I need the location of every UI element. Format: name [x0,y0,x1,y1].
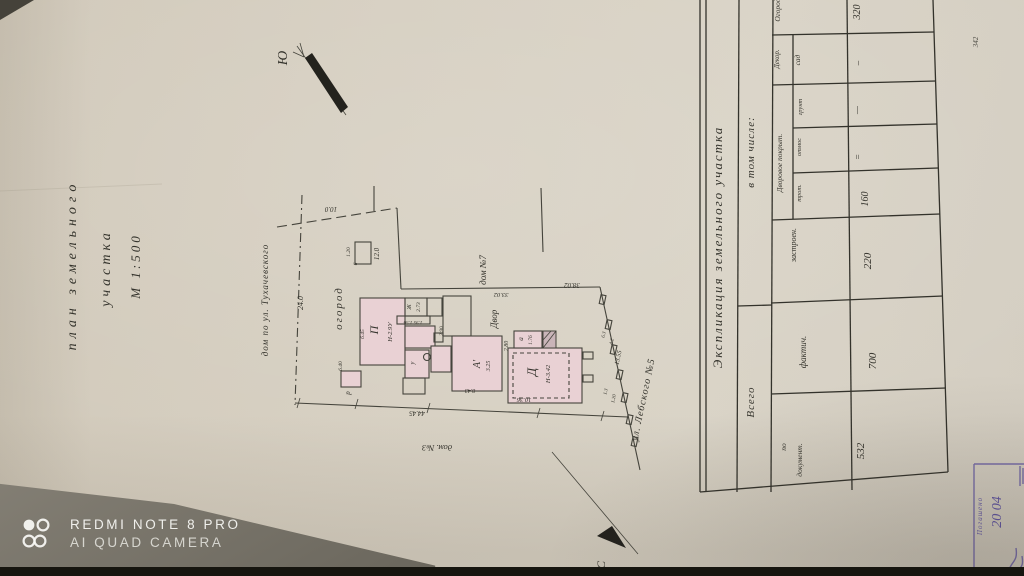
building-r-label: р [344,391,352,396]
dim-640: 6.40 [337,361,344,371]
camera-lens-outline-3 [35,535,46,546]
value-sidewalk: 160 [860,192,871,207]
table-row-b [772,81,936,85]
outbuilding-3 [431,346,451,372]
col-group-included: в том числе: [745,116,757,188]
neighbor-rear-label: дом по ул. Тухачевского [260,244,270,357]
quad-camera-icon [22,518,58,550]
building-P-height: Н-2.9У [387,321,394,343]
sheet-title-line2: участка [99,229,114,308]
photo-bottom-edge [0,567,1024,576]
value-fact: 700 [867,352,879,369]
compass-south: Ю [276,43,348,115]
dim-645: 6.45 [359,329,366,339]
compass-barbs [293,43,304,57]
dim-12: 12.0 [373,247,381,260]
col-decor: Декор. [773,49,781,70]
compass-south-label: Ю [276,50,291,66]
pencil-note: 342 [972,36,980,48]
col-group-total: Всего [745,386,757,417]
dim-42: 4.2 [609,338,615,346]
value-ogorod: 320 [852,5,863,21]
dim-120b: 1.20 [611,394,618,404]
watermark-line1: REDMI NOTE 8 PRO [70,517,241,532]
col-built: застроен. [789,228,798,263]
outbuilding-1 [405,326,435,348]
stamp-text: Погашено [976,497,984,536]
col-sidewalk: трот. [796,184,803,202]
camera-lens-outline-2 [24,535,35,546]
col-by-doc-2: документ. [795,443,804,477]
table-row-e [772,214,940,220]
yard-wing [443,296,471,336]
house7-label: дом №7 [478,255,488,285]
shed-small [355,242,371,264]
porch-1 [583,352,593,359]
outbuilding-u-label: у [409,361,416,365]
outbuilding-4 [403,378,425,394]
building-A-label: А' [472,359,483,369]
building-r [341,371,361,387]
side-jog [397,208,401,289]
dim-176: 1.76 [528,335,534,345]
col-blind-area: отмос [796,138,803,156]
table-row-a [772,32,934,35]
col-ogorod: Огород [773,0,782,22]
value-built: 220 [862,252,874,269]
camera-lens-filled [24,519,35,530]
col-sad: сад [793,54,802,65]
paper-crease [0,184,162,191]
house3-label: дом. №3 [422,443,452,453]
dim-3802: 38.02 [564,281,581,289]
explication-table: Экспликация земельного участка в том чис… [700,0,948,492]
stamp-edge-text-marks [1020,466,1023,486]
porch-2 [583,375,593,382]
dim-195156: 1.95 1.56 [403,319,422,324]
value-blind-area: = [853,154,863,160]
dim-1355: 13.55 [614,349,624,365]
dim-6: 6 [353,262,359,265]
sheet-title-line1: план земельного [65,180,80,351]
dim-3302: 33.02 [493,291,509,298]
north-arrowhead [597,526,626,548]
camera-watermark: REDMI NOTE 8 PRO AI QUAD CAMERA [22,517,241,550]
stamp-date: 20 04 [990,496,1005,528]
table-border-right [933,0,948,472]
dim-290: 2.90 [439,326,445,336]
col-by-doc-1: по [779,443,788,451]
table-split-total [738,305,772,306]
dim-325: 3.25 [486,361,492,373]
dim-4445: 44.45 [409,409,425,417]
table-rule-2 [771,0,773,492]
house3-boundary [295,403,628,417]
building-P-label: П [367,324,381,335]
dim-13: 1.3 [603,388,609,396]
dim-1036: 10.36 [516,396,531,403]
garden-label: огород [333,286,345,330]
neighbor-line-b [541,188,543,252]
photographed-plan-sheet: план земельного участка М 1:500 Ю С [0,0,1024,576]
table-title: Экспликация земельного участка [710,126,725,369]
table-rule-1 [737,0,739,492]
dim-280: 2.80 [504,341,510,352]
dim-843: 8.43 [465,387,476,394]
plan-drawing-svg: план земельного участка М 1:500 Ю С [0,0,1024,576]
table-rule-3 [847,0,852,490]
dim-63: 6.3 [601,331,607,339]
camera-lens-outline-1 [38,519,49,530]
dim-10: 10.0 [324,205,337,213]
building-D-height: Н-3.42 [545,364,552,384]
col-ground: грунт [797,98,804,115]
dim-273: 2.73 [416,302,422,312]
col-fact: фактич. [798,336,808,369]
table-row-c [793,124,937,128]
annex-k [427,298,442,316]
table-row-d [793,168,938,173]
ink-stamp: Погашено 20 04 [974,464,1024,576]
annex-zh-label: Ж [407,304,413,311]
sheet-scale: М 1:500 [128,233,143,299]
col-yard-cover: Дворовое покрыт. [775,134,784,194]
street-label: ул. Лебского №5 [629,357,657,443]
value-ground: — [852,105,862,115]
north-arrow-line [552,452,638,554]
compass-north: С [552,452,638,569]
dim-120a: 1.20 [346,247,352,257]
compass-needle [305,53,348,113]
table-row-f [771,296,943,303]
building-D-label: Д [524,367,539,378]
title-block: план земельного участка М 1:500 [65,180,143,351]
dim-24: 24.0 [296,296,305,310]
yard-label: Двор [489,309,499,329]
table-row-g [771,388,946,394]
value-by-doc: 532 [855,442,867,459]
site-plan: дом по ул. Тухачевского огород 24.0 10.0… [260,186,658,470]
watermark-line2: AI QUAD CAMERA [70,535,241,550]
street-boundary [600,287,640,470]
value-decor-sad: – [853,60,863,66]
building-a-label: а [517,337,525,341]
